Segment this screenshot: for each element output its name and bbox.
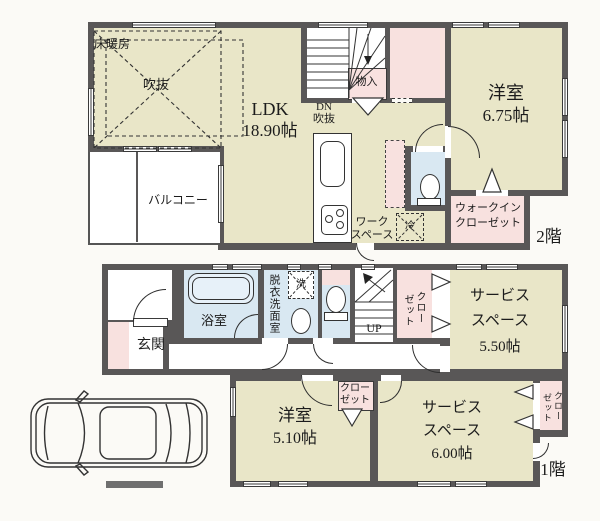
window-icon <box>212 264 228 270</box>
storage-door-icon <box>350 97 386 117</box>
window-icon <box>287 264 301 270</box>
label-workspace-1: ワーク <box>352 216 392 228</box>
stove-burner-icon <box>325 215 333 223</box>
label-wic-2: クローゼット <box>452 217 524 229</box>
bathtub-inner <box>192 277 250 300</box>
label-ldk-area: 18.90帖 <box>232 122 308 141</box>
room-landing-2f <box>390 28 445 98</box>
pantry-dashed <box>385 140 405 208</box>
stove-burner-icon <box>336 209 344 217</box>
door-arc <box>356 243 374 261</box>
window-icon <box>455 481 487 487</box>
wic-door-icon <box>474 168 510 194</box>
window-icon <box>562 305 568 353</box>
dashed-opening <box>392 98 412 103</box>
window-icon <box>318 264 332 270</box>
corridor-1f <box>169 344 440 369</box>
door-arc <box>533 443 549 459</box>
label-service600-1: サービス <box>416 400 488 417</box>
label-closet-bedroom-1: クロー <box>340 383 370 394</box>
washbasin-icon <box>291 308 311 334</box>
door-opening <box>440 346 450 372</box>
label-service550-2: スペース <box>462 313 538 330</box>
label-bathroom: 浴室 <box>193 314 235 328</box>
label-ldk-name: LDK <box>238 100 302 120</box>
label-genkan: 玄関 <box>130 338 172 353</box>
label-closet-hall-1: クロー <box>413 283 425 331</box>
car-icon <box>28 390 210 476</box>
label-workspace-2: スペース <box>350 229 394 241</box>
toilet-2f-tank-icon <box>417 198 441 206</box>
label-washroom: 脱衣洗面室 <box>264 270 280 338</box>
window-icon <box>278 481 308 487</box>
window-icon <box>232 264 262 270</box>
window-icon <box>230 387 236 417</box>
label-fridge: 冷 <box>403 221 417 232</box>
porch-step <box>106 481 163 488</box>
label-storage-2f: 物入 <box>350 76 383 88</box>
label-up: UP <box>357 322 391 335</box>
label-service600-3: 6.00帖 <box>422 446 482 463</box>
label-floor-heating: 床暖房 <box>94 38 144 51</box>
window-icon <box>456 264 482 270</box>
label-bedroom-1f-name: 洋室 <box>265 407 325 426</box>
label-closet-hall-2: ゼット <box>401 288 413 332</box>
label-wic-1: ウォークイン <box>452 202 524 214</box>
label-closet-service-2: ゼット <box>540 387 551 428</box>
label-service550-3: 5.50帖 <box>470 339 530 356</box>
label-dn-atrium: 吹抜 <box>306 113 342 125</box>
kitchen-sink-icon <box>320 141 345 187</box>
label-service600-2: スペース <box>414 423 490 440</box>
window-icon <box>488 22 520 28</box>
label-atrium: 吹抜 <box>138 78 174 92</box>
window-icon <box>243 481 271 487</box>
stove-burner-icon <box>336 221 344 229</box>
closet-bedroom-door-icon <box>340 408 364 428</box>
label-bedroom-1f-area: 5.10帖 <box>258 430 332 448</box>
window-icon <box>218 165 224 223</box>
label-dn: DN <box>310 101 338 113</box>
label-service550-1: サービス <box>464 288 536 305</box>
closet-service-folding-door-icon <box>513 383 535 433</box>
label-floor2-badge: 2階 <box>530 228 568 247</box>
balcony-divider <box>136 152 138 242</box>
label-closet-bedroom-2: ゼット <box>340 395 370 406</box>
window-icon <box>417 481 451 487</box>
room-genkan-tile <box>108 322 129 369</box>
label-laundry: 洗 <box>294 279 308 290</box>
window-icon <box>562 120 568 158</box>
closet-hall-folding-door-icon <box>430 270 452 340</box>
label-balcony: バルコニー <box>142 194 214 207</box>
room-toilet-1f-counter <box>322 270 350 285</box>
label-bedroom-2f-area: 6.75帖 <box>470 107 542 126</box>
toilet-1f-bowl-icon <box>326 286 346 313</box>
toilet-1f-tank-icon <box>324 312 348 321</box>
floorplan: 床暖房 吹抜 LDK 18.90帖 DN 吹抜 物入 バルコニー ワーク スペー… <box>0 0 600 521</box>
window-icon <box>562 78 568 116</box>
toilet-2f-bowl-icon <box>420 174 440 200</box>
window-icon <box>452 22 484 28</box>
label-floor1-badge: 1階 <box>534 461 572 480</box>
label-bedroom-2f-name: 洋室 <box>474 84 538 104</box>
label-closet-service-1: クロー <box>551 384 562 428</box>
window-icon <box>486 264 518 270</box>
